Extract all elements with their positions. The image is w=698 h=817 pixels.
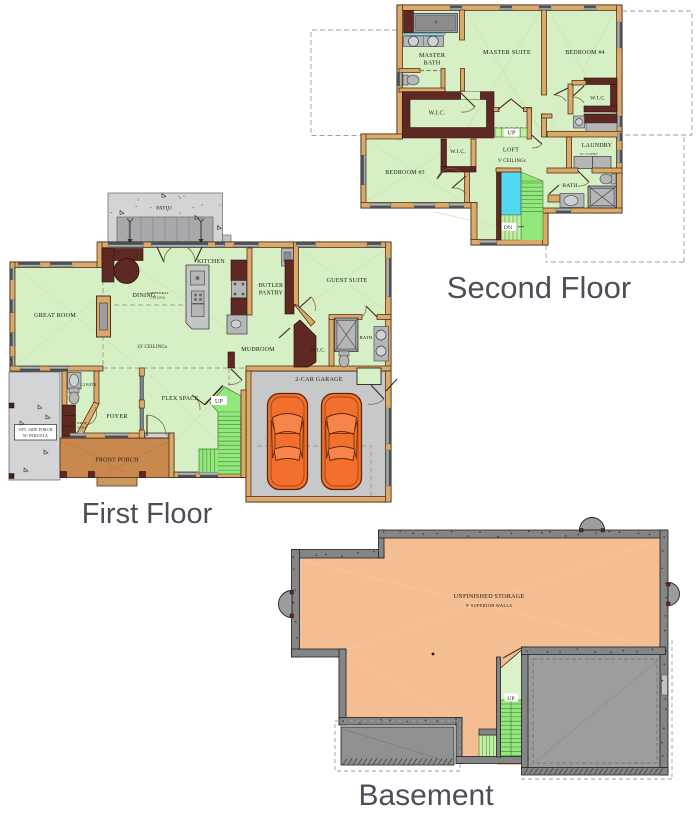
- svg-text:DN: DN: [504, 225, 512, 231]
- svg-text:9' SUPERIOR WALLS: 9' SUPERIOR WALLS: [466, 603, 513, 608]
- svg-text:UNFINISHED STORAGE: UNFINISHED STORAGE: [454, 593, 525, 600]
- svg-text:BATH: BATH: [360, 335, 373, 340]
- svg-text:UP: UP: [215, 399, 224, 405]
- svg-text:Second Floor: Second Floor: [447, 270, 631, 305]
- svg-text:BATH: BATH: [562, 183, 577, 189]
- svg-text:PATIO: PATIO: [156, 206, 172, 212]
- svg-text:W.I.C.: W.I.C.: [450, 149, 466, 155]
- svg-text:MASTER SUITE: MASTER SUITE: [483, 49, 531, 56]
- svg-text:LAUNDRY: LAUNDRY: [582, 143, 613, 149]
- svg-text:MUDROOM: MUDROOM: [241, 347, 275, 353]
- svg-text:BEDROOM #4: BEDROOM #4: [565, 50, 605, 56]
- svg-text:2-CAR GARAGE: 2-CAR GARAGE: [295, 376, 343, 383]
- svg-text:9' CEILINGs: 9' CEILINGs: [498, 159, 526, 164]
- svg-text:1/2 BATH: 1/2 BATH: [80, 383, 97, 387]
- svg-text:W/ PERGOLA: W/ PERGOLA: [23, 434, 48, 438]
- svg-text:Basement: Basement: [358, 779, 494, 812]
- svg-text:UP: UP: [507, 131, 516, 137]
- svg-text:ST. CLOSET: ST. CLOSET: [580, 152, 598, 156]
- svg-text:BEDROOM #3: BEDROOM #3: [385, 170, 425, 176]
- svg-text:ZONE: ZONE: [77, 426, 87, 430]
- svg-text:MASTER: MASTER: [419, 52, 446, 59]
- svg-text:CATHEDRAL: CATHEDRAL: [147, 291, 169, 295]
- svg-text:KITCHEN: KITCHEN: [197, 259, 225, 265]
- svg-text:LOFT: LOFT: [503, 147, 519, 154]
- svg-text:FLEX SPACE: FLEX SPACE: [162, 396, 199, 402]
- svg-text:BATH: BATH: [424, 60, 441, 67]
- svg-text:PANTRY: PANTRY: [259, 291, 284, 297]
- svg-text:GREAT ROOM: GREAT ROOM: [34, 312, 76, 319]
- svg-text:W.I.C.: W.I.C.: [429, 111, 446, 117]
- svg-text:DROP: DROP: [77, 421, 87, 425]
- svg-text:OPT. SIDE PORCH: OPT. SIDE PORCH: [19, 428, 53, 432]
- svg-text:BUTLER: BUTLER: [259, 283, 284, 289]
- svg-text:GUEST SUITE: GUEST SUITE: [326, 277, 367, 284]
- svg-text:FRONT PORCH: FRONT PORCH: [95, 458, 139, 464]
- svg-text:19' CEILINGs: 19' CEILINGs: [137, 345, 167, 350]
- svg-text:W.I.C.: W.I.C.: [590, 96, 606, 102]
- svg-text:UP: UP: [507, 696, 515, 702]
- svg-text:First Floor: First Floor: [82, 498, 213, 530]
- svg-text:FOYER: FOYER: [106, 413, 128, 420]
- svg-text:W.I.C.: W.I.C.: [310, 348, 325, 354]
- svg-text:CEILING: CEILING: [151, 296, 166, 300]
